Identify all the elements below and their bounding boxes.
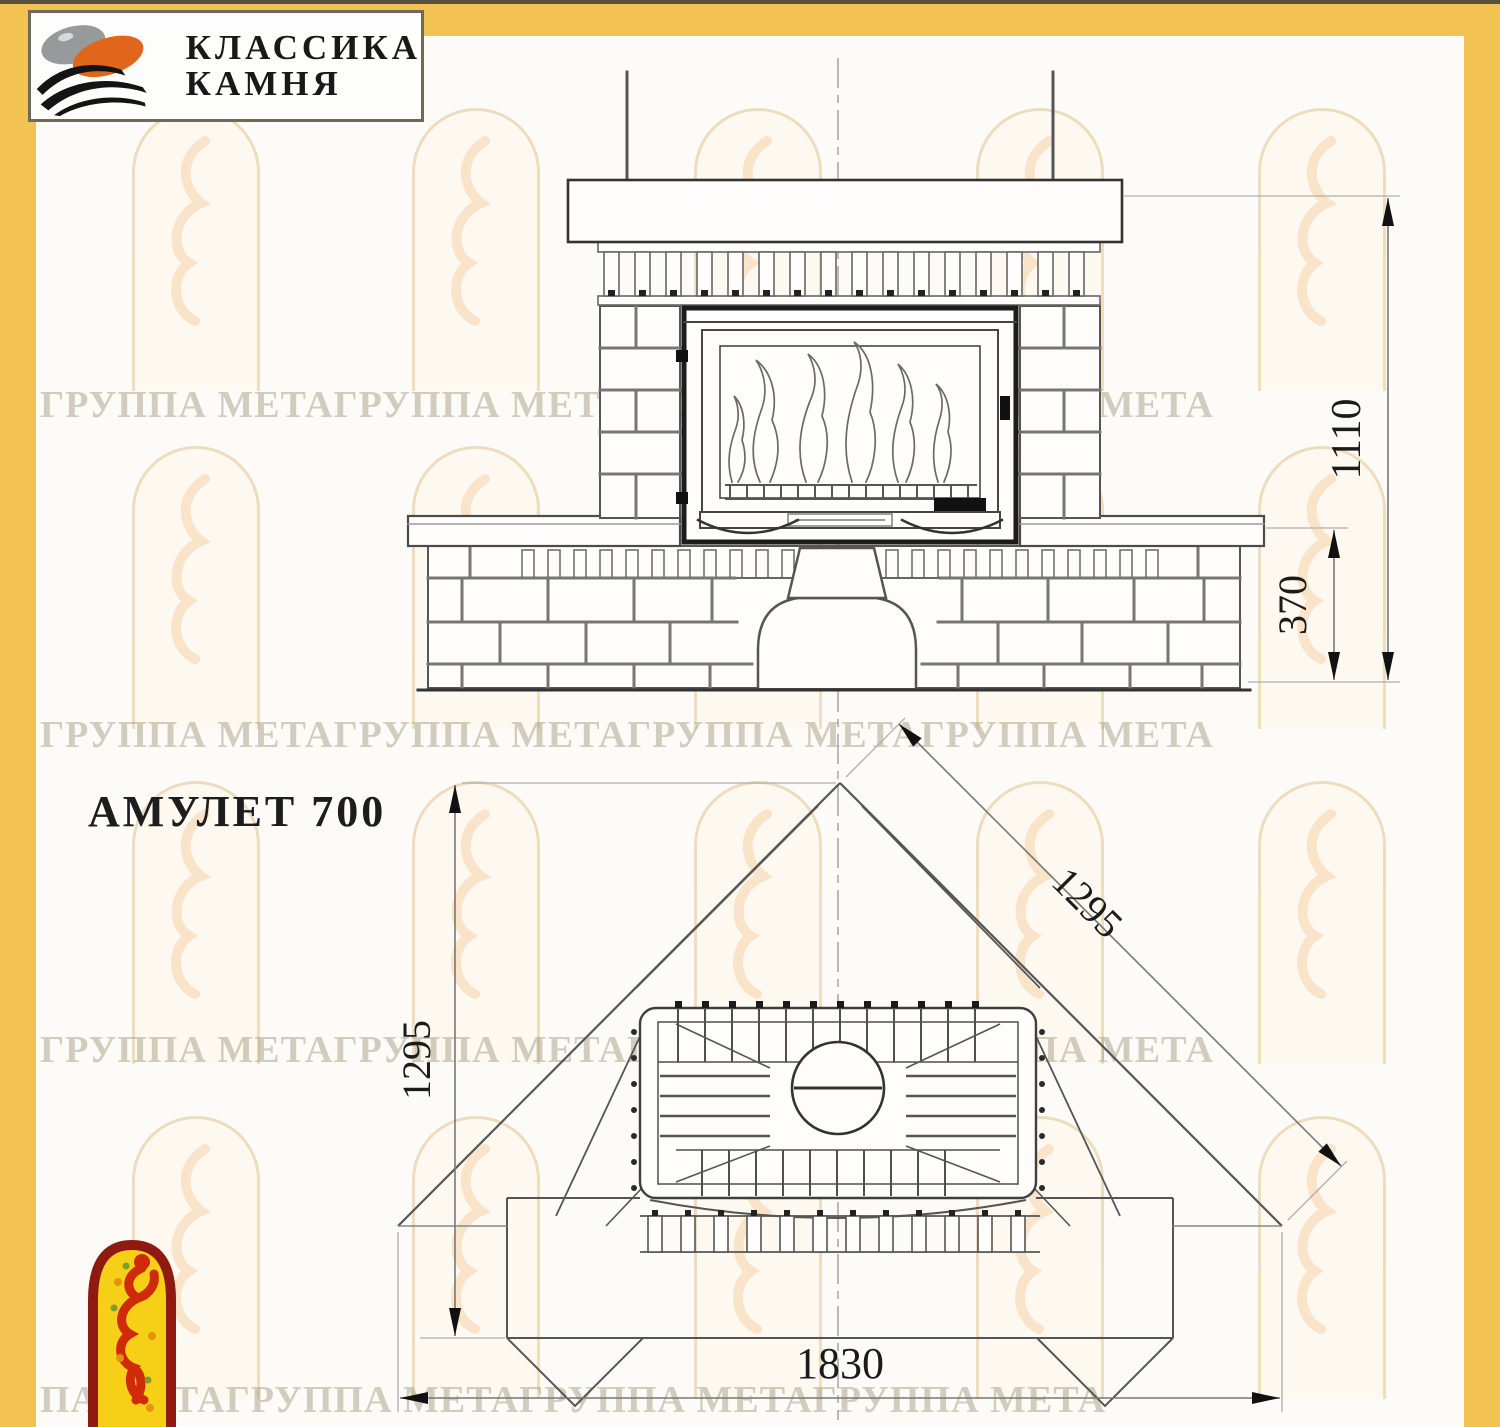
dim-total-height-label: 1110 xyxy=(1324,399,1370,480)
bench-slab-right xyxy=(1020,516,1264,546)
frame-border-left xyxy=(0,0,36,1427)
door-hinge xyxy=(676,492,688,504)
body-back-edge xyxy=(636,806,818,988)
wood-niche-arch xyxy=(758,598,916,688)
body-back-edge xyxy=(862,806,1040,988)
stone-logo-graphic xyxy=(31,14,176,118)
plan-view xyxy=(398,783,1282,1406)
emblem-figure-head xyxy=(134,1254,150,1270)
bench-slab-left xyxy=(408,516,680,546)
fireplace-technical-drawing: 1110 370 1295 1295 1830 xyxy=(0,0,1500,1427)
firebox-splay xyxy=(556,1032,642,1216)
frame-border-right xyxy=(1464,0,1500,1427)
dim-bench-height-label: 370 xyxy=(1270,575,1315,635)
pillar-right xyxy=(1020,306,1100,518)
door-hinge xyxy=(676,350,688,362)
dim-front-width-label: 1830 xyxy=(796,1339,884,1388)
firebox-splay xyxy=(1034,1188,1070,1226)
page-top-edge xyxy=(0,0,1500,4)
frieze-bottom-rail xyxy=(598,296,1100,305)
dim-side-depth-label: 1295 xyxy=(394,1020,439,1100)
brand-name-line1: КЛАССИКА xyxy=(186,30,421,66)
air-control xyxy=(934,498,986,512)
black-stripe xyxy=(41,81,147,110)
model-name-label: АМУЛЕТ 700 xyxy=(88,786,386,837)
firebox-splay xyxy=(1034,1032,1120,1216)
mantel-shelf xyxy=(568,180,1122,242)
front-elevation-view xyxy=(408,72,1264,690)
black-stripe xyxy=(54,98,146,117)
brand-name-line2: КАМНЯ xyxy=(186,66,421,102)
pillar-left xyxy=(600,306,680,518)
firebox-splay xyxy=(606,1188,642,1226)
dim-wall-length-label: 1295 xyxy=(1043,858,1131,946)
brand-logo: КЛАССИКА КАМНЯ xyxy=(28,10,424,122)
door-handle xyxy=(1000,396,1010,420)
arch-keystone xyxy=(788,548,886,598)
meta-emblem xyxy=(86,1238,178,1427)
frieze-top-rail xyxy=(598,242,1100,252)
catalog-page: ГРУППА МЕТАГРУППА МЕТАГРУППА МЕТАГРУППА … xyxy=(0,0,1500,1427)
